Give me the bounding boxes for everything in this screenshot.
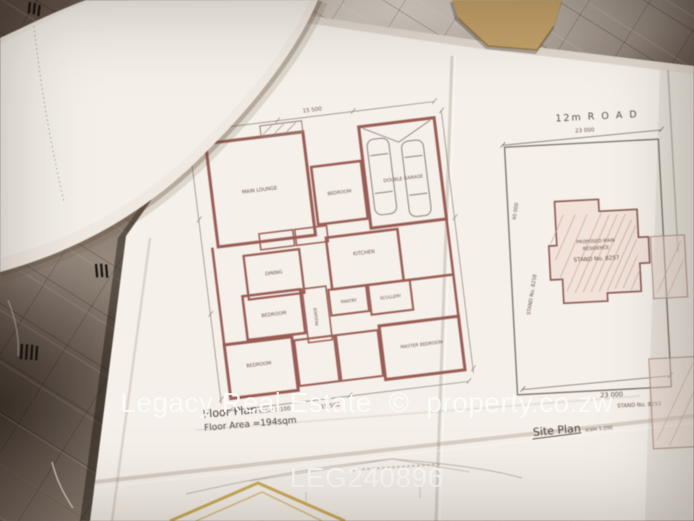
photo-of-floor-plan: 15 500 15 500 bbox=[0, 0, 694, 521]
watermark-line1: Legacy Real Estate © property.co.zw bbox=[120, 390, 613, 415]
fabric-highlight-scratches bbox=[8, 300, 73, 508]
watermark-line2: LEG240896 bbox=[120, 465, 613, 490]
watermark: Legacy Real Estate © property.co.zw LEG2… bbox=[120, 340, 613, 521]
site-plan-dim-top: 23 000 bbox=[575, 127, 595, 134]
